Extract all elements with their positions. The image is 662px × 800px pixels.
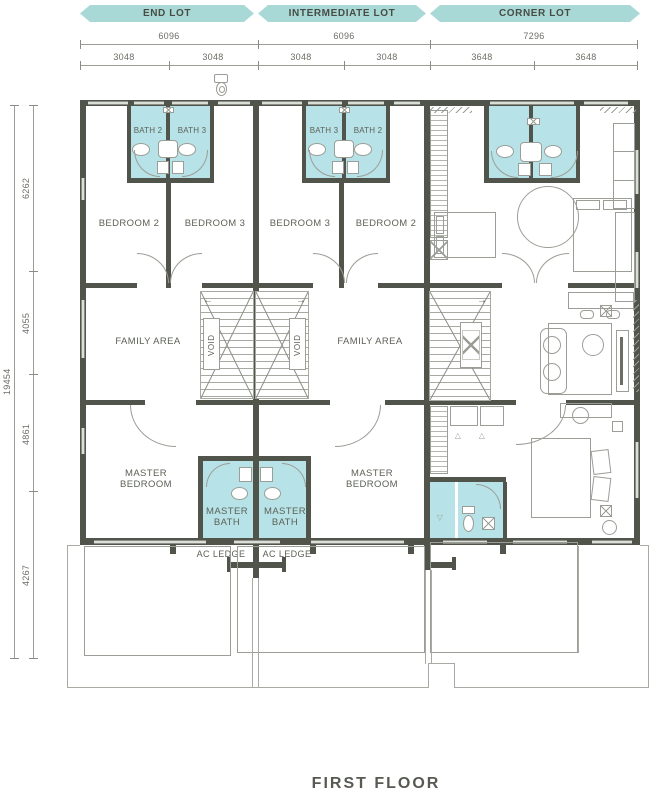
wall-segment: [484, 106, 489, 178]
door-swing-arc: [170, 253, 202, 283]
window: [134, 101, 164, 105]
window: [81, 178, 85, 200]
hanger-icon: △: [452, 430, 464, 441]
plan-line: [578, 546, 579, 653]
dimension-tick: [29, 271, 38, 272]
plan-line: [455, 482, 458, 538]
intermediate-bath3-label: BATH 3: [304, 126, 344, 135]
plan-line: [613, 151, 635, 152]
dim-line: [80, 44, 638, 45]
dim-4861: 4861: [21, 406, 31, 462]
window: [635, 442, 639, 498]
intermediate-master-bedroom-label: MASTER BEDROOM: [337, 468, 407, 490]
closet-shelf: [450, 406, 478, 426]
dimension-tick: [169, 61, 170, 70]
dimension-tick: [258, 40, 259, 49]
fixture: [520, 142, 542, 162]
stool: [606, 310, 620, 319]
fixture: [158, 140, 178, 158]
door-swing-arc: [502, 253, 535, 283]
fixture-box: [462, 330, 480, 360]
shower-head-icon: ▽: [434, 512, 446, 523]
fixture: [260, 467, 273, 482]
porch-roof-outline: [430, 542, 578, 653]
stool: [580, 310, 594, 319]
dim-3048-a: 3048: [94, 52, 154, 62]
wall-segment: [429, 400, 516, 405]
stair-direction-arrow: →: [477, 296, 487, 306]
window: [234, 540, 280, 544]
hanger-icon: △: [476, 430, 488, 441]
pillow: [591, 449, 612, 475]
dim-line: [80, 65, 638, 66]
curtain-zigzag: [633, 300, 639, 392]
wall-segment: [256, 400, 330, 405]
window: [262, 101, 302, 105]
side-table: [602, 520, 617, 535]
intermediate-master-bath-label: MASTER BATH: [260, 506, 310, 528]
plan-line: [33, 105, 34, 659]
dim-3648-b: 3648: [556, 52, 616, 62]
dimension-tick: [258, 61, 259, 70]
dimension-tick: [344, 61, 345, 70]
sofa-cushion: [543, 336, 561, 354]
dim-3648-a: 3648: [452, 52, 512, 62]
tv-icon: [620, 337, 623, 385]
round-rug: [517, 186, 579, 248]
plan-line: [431, 570, 432, 664]
window: [394, 101, 420, 105]
plan-line: [67, 545, 80, 546]
door-swing-arc: [137, 253, 169, 283]
wall-segment: [503, 482, 507, 538]
window: [81, 300, 85, 358]
plan-line: [454, 687, 648, 688]
window: [635, 150, 639, 194]
wardrobe: [613, 123, 635, 209]
bed: [531, 438, 591, 518]
dimension-tick: [29, 374, 38, 375]
window: [308, 101, 342, 105]
plan-line: [428, 663, 429, 688]
fixture: [462, 506, 475, 514]
dimension-tick: [29, 658, 38, 659]
porch-roof-outline: [237, 546, 425, 653]
dimension-tick: [29, 105, 38, 106]
wall-segment: [210, 106, 214, 178]
pillow: [576, 200, 600, 210]
dimension-tick: [430, 61, 431, 70]
dimension-tick: [10, 658, 19, 659]
banner-end-lot: END LOT: [80, 5, 254, 22]
porch-roof-outline: [84, 546, 231, 656]
intermediate-void-label: VOID: [293, 326, 302, 364]
wall-segment: [302, 178, 390, 183]
closet-shelf: [480, 406, 504, 426]
intermediate-family-area-label: FAMILY AREA: [325, 336, 415, 347]
coffee-table: [582, 334, 604, 356]
fixture: [231, 487, 248, 500]
fixture-box: [600, 505, 612, 517]
dim-3048-d: 3048: [357, 52, 417, 62]
dimension-tick: [80, 40, 81, 49]
wall-segment: [576, 106, 580, 183]
window: [311, 540, 404, 544]
dim-3048-b: 3048: [183, 52, 243, 62]
wall-segment: [256, 283, 313, 288]
wall-segment: [385, 400, 424, 405]
dim-4267: 4267: [21, 547, 31, 603]
door-swing-arc: [335, 405, 381, 447]
dim-6096-a: 6096: [139, 31, 199, 41]
dimension-tick: [10, 105, 19, 106]
wall-segment: [256, 456, 311, 461]
end-bath3-label: BATH 3: [172, 126, 212, 135]
wall-segment: [127, 106, 131, 178]
window: [94, 540, 206, 544]
dimension-tick: [80, 61, 81, 70]
dim-7296: 7296: [504, 31, 564, 41]
window: [218, 101, 250, 105]
console-table: [568, 292, 634, 309]
dim-6096-b: 6096: [314, 31, 374, 41]
fixture: [264, 487, 281, 500]
fixture: [463, 515, 474, 532]
stair-direction-arrow: ←: [203, 296, 213, 306]
plan-line: [648, 545, 649, 688]
side-unit: [612, 421, 623, 432]
window: [584, 101, 628, 105]
plan-line: [428, 663, 455, 664]
plan-line: [640, 545, 649, 546]
plan-line: [67, 545, 68, 688]
banner-intermediate-lot: INTERMEDIATE LOT: [258, 5, 426, 22]
sofa-cushion: [543, 363, 561, 381]
intermediate-bedroom2-label: BEDROOM 2: [351, 218, 421, 229]
counter: [615, 212, 635, 302]
plan-line: [14, 105, 15, 659]
wall-segment: [426, 477, 506, 482]
plan-line: [67, 687, 429, 688]
window: [88, 101, 128, 105]
wall-segment: [202, 283, 253, 288]
end-bedroom3-label: BEDROOM 3: [180, 218, 250, 229]
plan-line: [613, 180, 635, 181]
plan-line: [252, 578, 253, 688]
window: [348, 101, 384, 105]
fixture-box: [527, 118, 540, 125]
wall-segment: [196, 400, 253, 405]
plan-line: [425, 570, 426, 664]
dimension-tick: [534, 61, 535, 70]
wall-segment: [302, 106, 306, 178]
banner-corner-lot: CORNER LOT: [430, 5, 640, 22]
dimension-tick: [637, 40, 638, 49]
window: [490, 101, 574, 105]
zigzag-screen: [600, 107, 636, 113]
end-void-label: VOID: [207, 326, 216, 364]
dim-4055: 4055: [21, 295, 31, 351]
window: [635, 252, 639, 288]
wall-segment: [198, 456, 253, 461]
dimension-tick: [430, 40, 431, 49]
window: [81, 428, 85, 454]
toilet-icon: [219, 86, 225, 93]
intermediate-bath2-label: BATH 2: [348, 126, 388, 135]
fixture-box: [339, 107, 350, 113]
fixture: [334, 140, 354, 158]
end-bedroom2-label: BEDROOM 2: [94, 218, 164, 229]
wall-segment: [484, 178, 580, 183]
window: [172, 101, 208, 105]
fixture-box: [163, 107, 174, 113]
plan-line: [258, 578, 259, 688]
dimension-tick: [637, 61, 638, 70]
fixture: [239, 467, 252, 482]
door-swing-arc: [536, 253, 569, 283]
pillow: [436, 236, 444, 254]
wall-segment: [429, 283, 502, 288]
dim-6262: 6262: [21, 160, 31, 216]
intermediate-bedroom3-label: BEDROOM 3: [265, 218, 335, 229]
fixture-box: [482, 517, 495, 530]
wall-segment: [386, 106, 390, 178]
end-bath2-label: BATH 2: [128, 126, 168, 135]
dim-19454: 19454: [2, 352, 12, 412]
door-swing-arc: [346, 253, 378, 283]
closet-rail: [430, 406, 448, 474]
dimension-tick: [29, 491, 38, 492]
wall-segment: [80, 283, 137, 288]
end-master-bedroom-label: MASTER BEDROOM: [111, 468, 181, 490]
desk-stool: [572, 407, 589, 424]
pillow: [436, 216, 444, 234]
stair-direction-arrow: →: [296, 296, 306, 306]
end-family-area-label: FAMILY AREA: [103, 336, 193, 347]
fixture: [518, 163, 531, 176]
floor-plan-page: END LOT INTERMEDIATE LOT CORNER LOT 6096…: [0, 0, 662, 800]
plan-line: [454, 663, 455, 688]
page-title: FIRST FLOOR: [296, 775, 456, 793]
door-swing-arc: [130, 405, 176, 447]
pillow: [591, 476, 612, 502]
end-master-bath-label: MASTER BATH: [202, 506, 252, 528]
window: [592, 540, 632, 544]
dim-3048-c: 3048: [271, 52, 331, 62]
wall-segment: [378, 283, 424, 288]
